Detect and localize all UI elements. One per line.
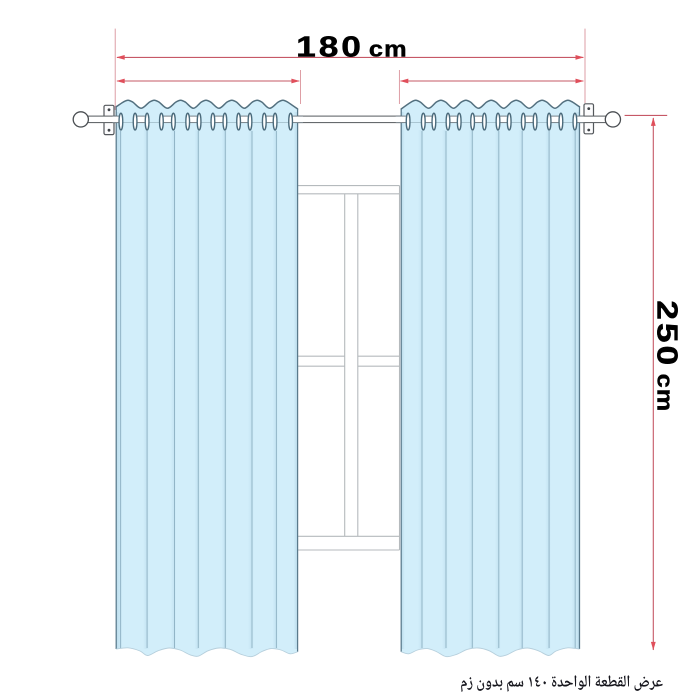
- svg-text:250: 250: [651, 300, 683, 368]
- svg-text:cm: cm: [369, 38, 408, 62]
- svg-text:cm: cm: [652, 374, 676, 413]
- svg-text:180: 180: [296, 30, 364, 62]
